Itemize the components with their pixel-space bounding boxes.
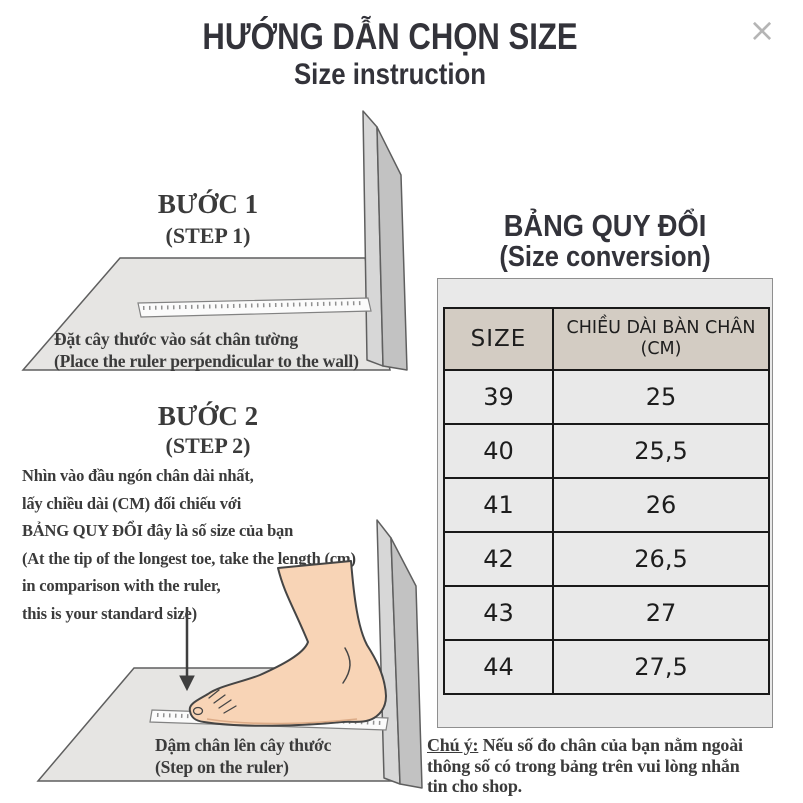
size-value: 41: [445, 479, 554, 531]
step1-caption: Đặt cây thước vào sát chân tường (Place …: [54, 329, 359, 372]
step2-heading: BƯỚC 2: [12, 401, 404, 432]
page-title: HƯỚNG DẪN CHỌN SIZE: [62, 16, 717, 58]
length-value: 26: [554, 479, 768, 531]
size-table: SIZE CHIỀU DÀI BÀN CHÂN (CM) 39 25 40 25…: [443, 307, 770, 695]
length-value: 27: [554, 587, 768, 639]
conversion-heading: BẢNG QUY ĐỔI: [457, 208, 753, 244]
size-table-container: SIZE CHIỀU DÀI BÀN CHÂN (CM) 39 25 40 25…: [437, 278, 773, 728]
table-row: 41 26: [445, 477, 768, 531]
note: Chú ý: Nếu số đo chân của bạn nằm ngoài …: [427, 735, 779, 797]
size-value: 39: [445, 371, 554, 423]
step2-caption: Dậm chân lên cây thước (Step on the rule…: [155, 734, 331, 778]
note-label: Chú ý:: [427, 735, 478, 755]
column-header-length: CHIỀU DÀI BÀN CHÂN (CM): [554, 309, 768, 369]
step1-caption-vi: Đặt cây thước vào sát chân tường: [54, 329, 359, 351]
length-value: 25,5: [554, 425, 768, 477]
size-value: 42: [445, 533, 554, 585]
size-guide-modal: HƯỚNG DẪN CHỌN SIZE Size instruction × B…: [0, 0, 803, 803]
table-row: 42 26,5: [445, 531, 768, 585]
close-icon[interactable]: ×: [744, 12, 780, 48]
down-arrow-icon: [180, 607, 194, 690]
size-value: 44: [445, 641, 554, 693]
table-row: 44 27,5: [445, 639, 768, 693]
foot-shape: [190, 561, 386, 726]
table-row: 39 25: [445, 369, 768, 423]
step2-caption-vi: Dậm chân lên cây thước: [155, 734, 331, 756]
size-value: 43: [445, 587, 554, 639]
step2-subheading: (STEP 2): [12, 433, 404, 459]
step2-caption-en: (Step on the ruler): [155, 756, 331, 778]
conversion-subheading: (Size conversion): [457, 241, 753, 274]
step1-caption-en: (Place the ruler perpendicular to the wa…: [54, 351, 359, 373]
column-header-size: SIZE: [445, 309, 554, 369]
table-row: 43 27: [445, 585, 768, 639]
wall-side-face: [377, 127, 407, 370]
length-value: 27,5: [554, 641, 768, 693]
length-value: 25: [554, 371, 768, 423]
size-value: 40: [445, 425, 554, 477]
length-value: 26,5: [554, 533, 768, 585]
table-header-row: SIZE CHIỀU DÀI BÀN CHÂN (CM): [445, 309, 768, 369]
page-subtitle: Size instruction: [55, 58, 726, 92]
table-row: 40 25,5: [445, 423, 768, 477]
